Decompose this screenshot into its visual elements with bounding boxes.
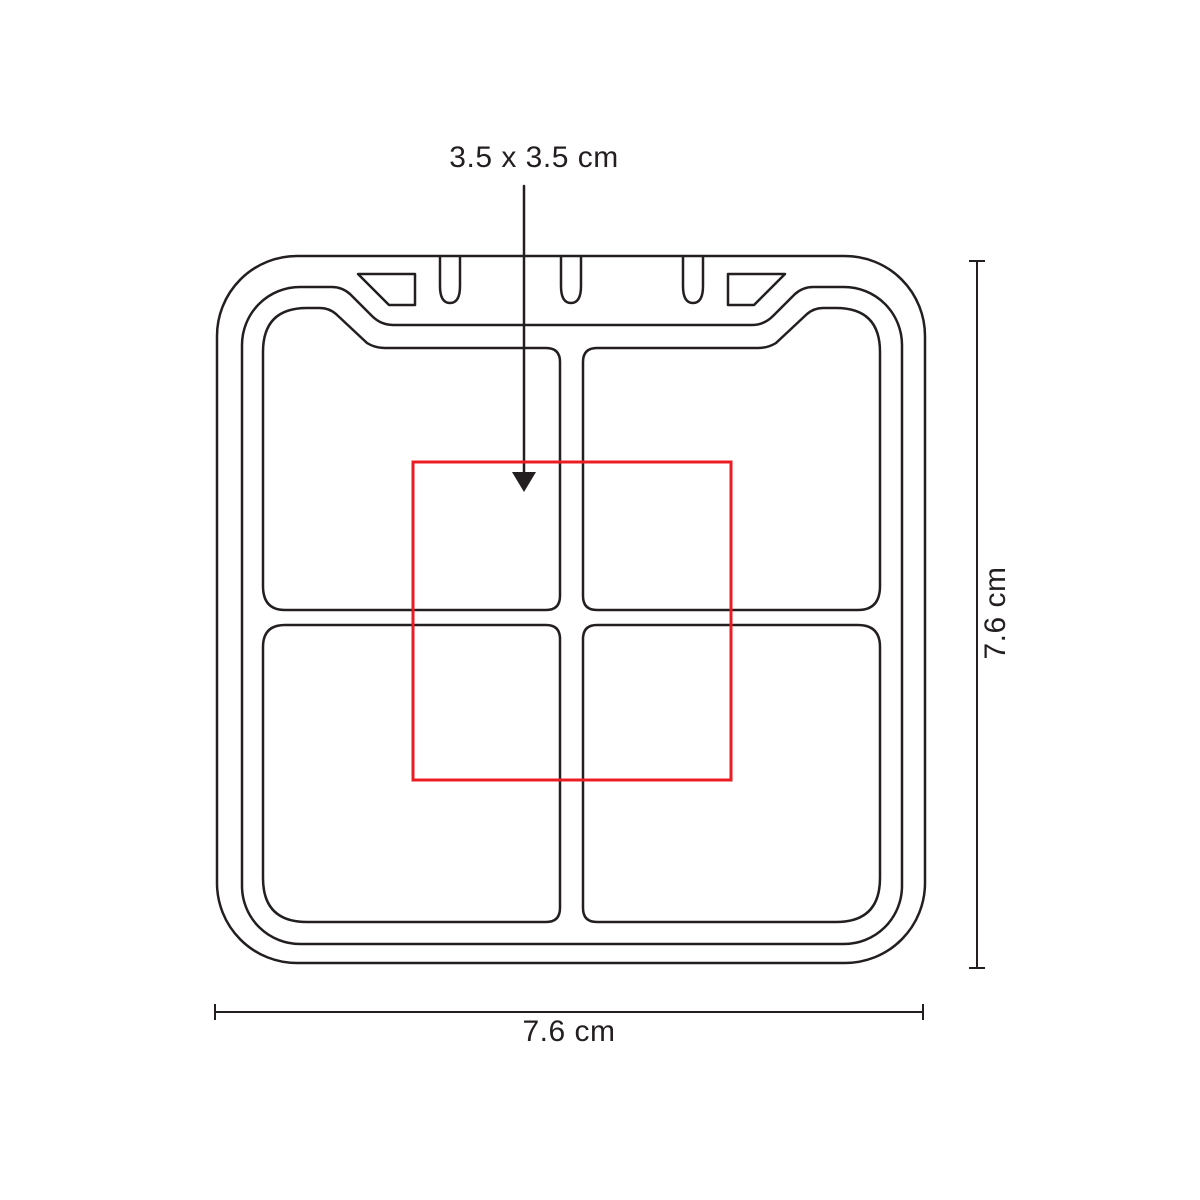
latch-slot-left: [440, 257, 460, 303]
inner-shell-outline: [242, 287, 902, 944]
latch-slot-right: [683, 257, 703, 303]
imprint-area-label: 3.5 x 3.5 cm: [384, 138, 684, 178]
line-art-group: [217, 186, 925, 963]
trapezoid-cutout-right: [728, 274, 785, 305]
dimension-lines-group: [215, 261, 985, 1020]
diagram-canvas: 3.5 x 3.5 cm 7.6 cm 7.6 cm: [0, 0, 1200, 1200]
imprint-area-square: [413, 462, 731, 780]
pointer-arrow-head: [512, 472, 536, 492]
height-dimension-label: 7.6 cm: [978, 463, 1014, 763]
trapezoid-cutout-left: [358, 274, 415, 305]
width-dimension-label: 7.6 cm: [419, 1014, 719, 1050]
latch-slot-center: [561, 257, 581, 303]
